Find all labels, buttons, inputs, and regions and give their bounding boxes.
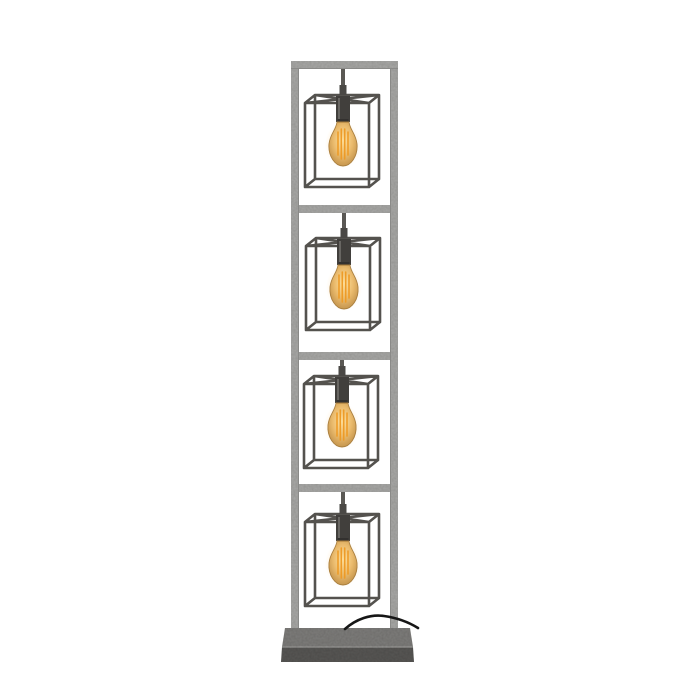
frame-crossbar xyxy=(291,205,398,213)
product-photo xyxy=(0,0,700,700)
frame-right-bar xyxy=(390,61,398,640)
frame-left-bar xyxy=(291,61,299,640)
base xyxy=(281,628,414,662)
frame-crossbar xyxy=(291,484,398,492)
floor-lamp-image xyxy=(0,0,700,700)
base-top-face xyxy=(282,628,413,647)
frame-top-bar xyxy=(291,61,398,69)
frame-crossbar xyxy=(291,352,398,360)
base-front-face xyxy=(281,647,414,662)
